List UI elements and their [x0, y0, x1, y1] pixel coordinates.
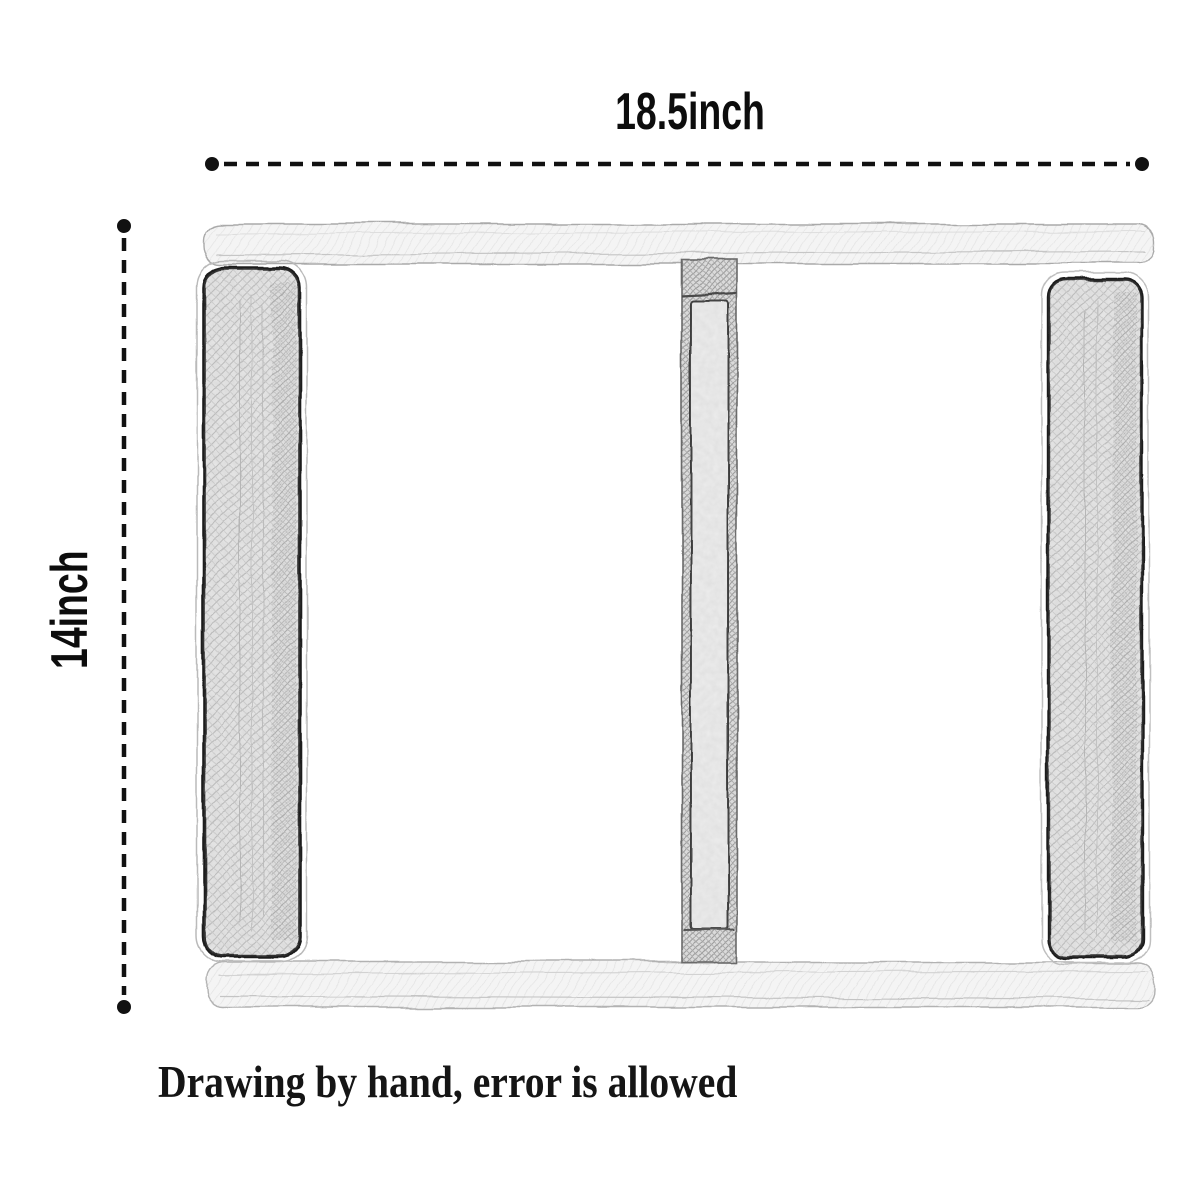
hand-drawn-disclaimer-note: Drawing by hand, error is allowed [158, 1056, 737, 1108]
height-dimension-line [117, 219, 131, 1014]
product-dimension-diagram: 18.5inch 14inch [0, 0, 1200, 1200]
top-rail [205, 224, 1155, 264]
right-side-panel [1042, 272, 1149, 963]
left-side-panel [197, 261, 307, 961]
width-dimension-endpoint-left [205, 157, 219, 171]
width-dimension-line [205, 157, 1149, 171]
height-dimension-endpoint-top [117, 219, 131, 233]
bottom-rail [207, 962, 1154, 1007]
center-divider-strip [682, 259, 737, 963]
width-dimension-endpoint-right [1135, 157, 1149, 171]
hand-drawn-frame-sketch [0, 0, 1200, 1200]
height-dimension-endpoint-bottom [117, 1000, 131, 1014]
